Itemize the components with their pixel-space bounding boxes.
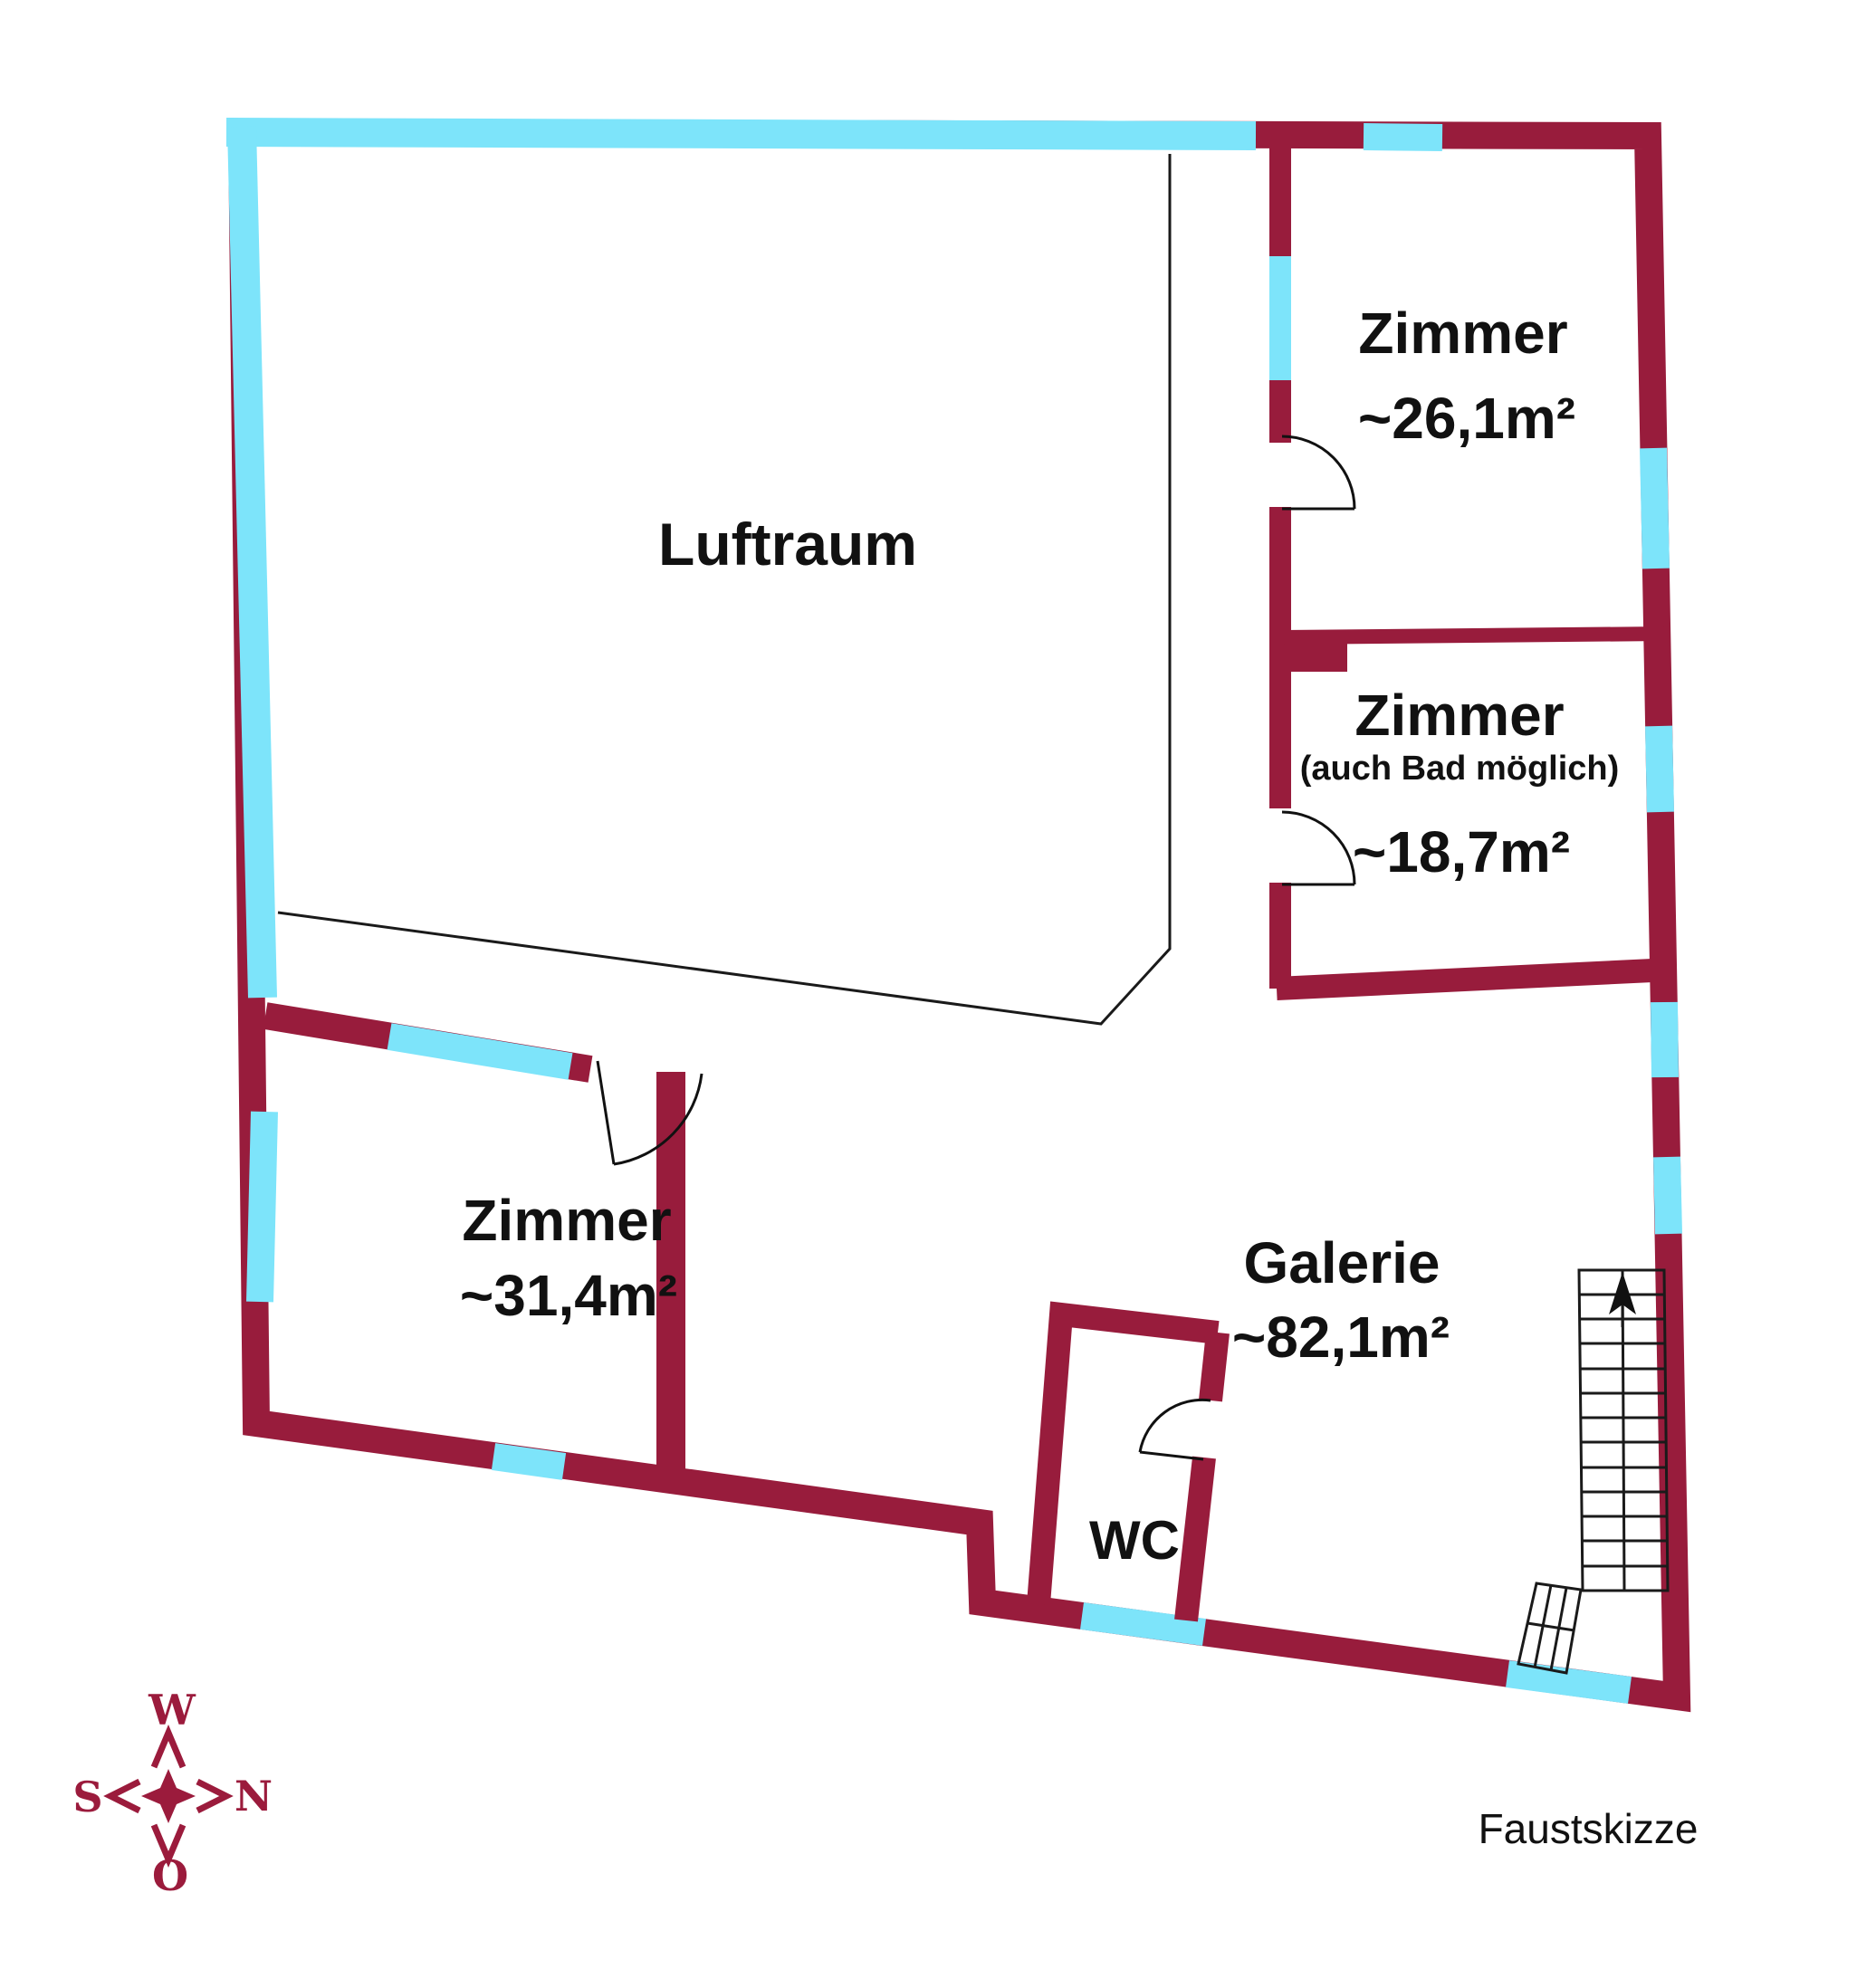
compass-arrow-up-icon — [154, 1733, 183, 1767]
floor-plan-page: Luftraum Zimmer ~26,1m² Zimmer (auch Bad… — [0, 0, 1876, 1988]
door-zimmer-e — [1282, 812, 1354, 884]
door-arc — [1140, 1400, 1211, 1452]
compass-star-icon — [141, 1769, 196, 1823]
door-leaf — [598, 1061, 614, 1164]
label-zimmer-e-area: ~18,7m² — [1353, 819, 1570, 884]
window-right-2 — [1659, 726, 1661, 812]
stairs-winders — [1518, 1583, 1581, 1673]
window-left-lower — [260, 1112, 264, 1302]
label-zimmer-e-note: (auch Bad möglich) — [1300, 750, 1620, 788]
window-right-3 — [1664, 1002, 1665, 1077]
compass-letter-right: N — [234, 1772, 273, 1821]
wall-divider-stub — [1289, 630, 1347, 672]
label-zimmer-sw-area: ~31,4m² — [460, 1263, 677, 1328]
wall-wc-right-lower — [1186, 1458, 1204, 1620]
door-zimmer-ne — [1282, 436, 1354, 509]
compass-letter-bottom: O — [152, 1851, 188, 1900]
label-zimmer-e-name: Zimmer — [1354, 683, 1564, 748]
label-zimmer-sw-name: Zimmer — [462, 1188, 671, 1253]
window-zimmer-sw-top — [389, 1037, 570, 1066]
door-leaf — [1140, 1452, 1203, 1459]
door-arc — [1282, 436, 1354, 509]
compass-letter-top: W — [148, 1686, 196, 1735]
floor-plan: Luftraum Zimmer ~26,1m² Zimmer (auch Bad… — [0, 0, 1876, 1988]
window-bottom-right — [1507, 1674, 1630, 1690]
compass-rose: W N S O — [72, 1686, 273, 1900]
exterior-walls — [242, 132, 1677, 1696]
window-right-4 — [1667, 1157, 1669, 1234]
label-galerie-name: Galerie — [1243, 1230, 1440, 1295]
wall-zimmer-e-bottom — [1277, 970, 1671, 989]
label-luftraum: Luftraum — [658, 511, 917, 578]
door-wc — [1140, 1400, 1211, 1459]
room-labels: Luftraum Zimmer ~26,1m² Zimmer (auch Bad… — [460, 301, 1619, 1571]
compass-arrow-right-icon — [197, 1782, 226, 1811]
label-wc: WC — [1089, 1510, 1180, 1571]
door-arc — [1282, 812, 1354, 884]
caption-faustskizze: Faustskizze — [1479, 1805, 1699, 1852]
luftraum-boundary-line — [278, 154, 1170, 1024]
window-top-band — [226, 132, 1256, 136]
wall-wc-right-upper — [1211, 1333, 1218, 1400]
compass-letter-left: S — [72, 1773, 102, 1821]
door-zimmer-sw — [598, 1061, 702, 1164]
stairs — [1518, 1270, 1668, 1673]
label-zimmer-ne-name: Zimmer — [1358, 301, 1567, 366]
window-right-1 — [1653, 448, 1656, 569]
label-zimmer-ne-area: ~26,1m² — [1358, 386, 1575, 451]
label-galerie-area: ~82,1m² — [1232, 1305, 1450, 1370]
window-bottom-left — [493, 1457, 564, 1467]
exterior-wall-outline — [242, 132, 1677, 1696]
window-top-right — [1364, 137, 1442, 138]
compass-arrow-left-icon — [110, 1782, 139, 1811]
